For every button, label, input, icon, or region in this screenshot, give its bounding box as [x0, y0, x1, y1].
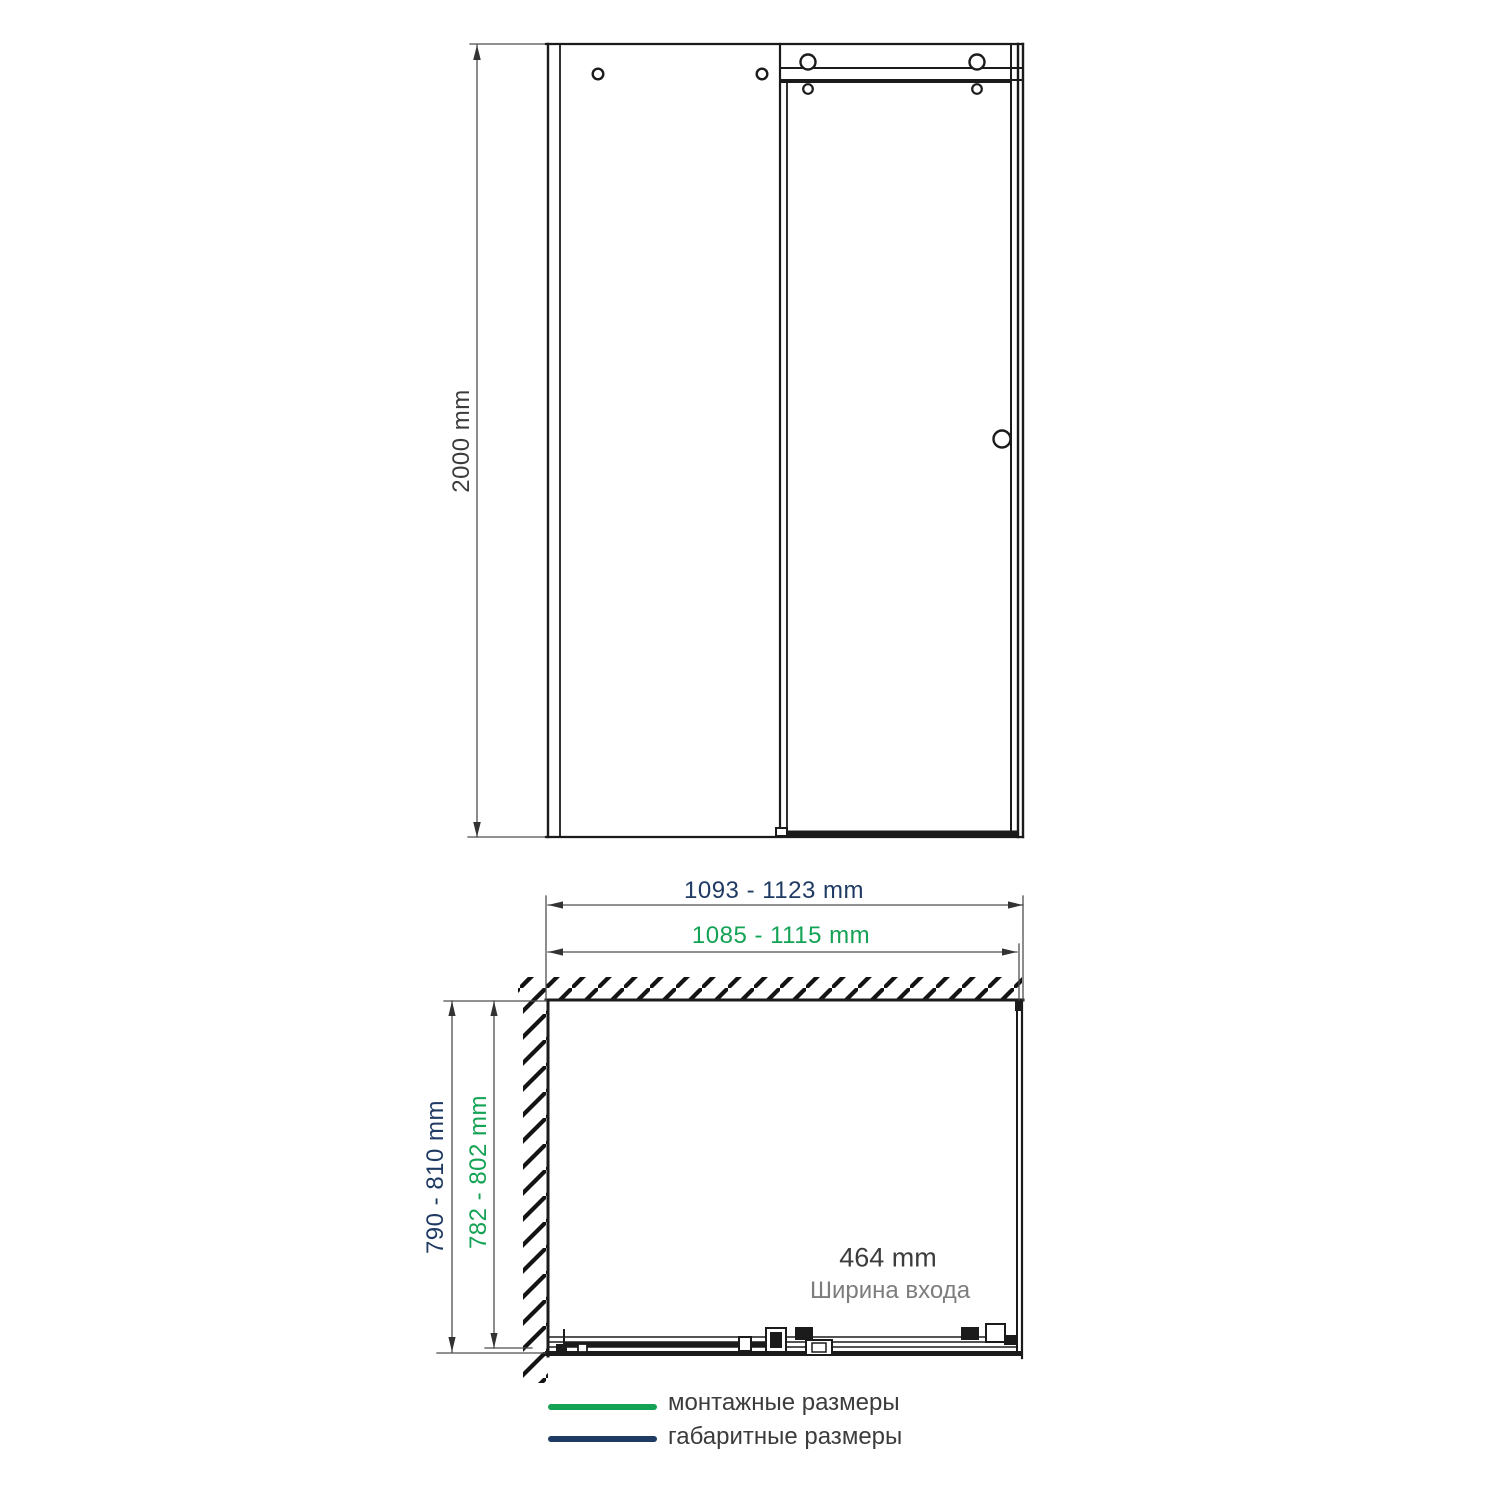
- legend-label-mounting: монтажные размеры: [668, 1391, 900, 1415]
- shower-enclosure-dimension-drawing: 2000 mm 1093 - 1123 mm 1085 - 1115 mm 79…: [0, 0, 1504, 1504]
- front-height-dimension-label: 2000 mm: [450, 389, 474, 493]
- door-handle-hole: [994, 431, 1011, 448]
- front-elevation-view: [468, 44, 1023, 837]
- plan-view-drawing: [437, 896, 1023, 1383]
- door-bottom-guide: [776, 828, 787, 836]
- overall-depth-dimension-label: 790 - 810 mm: [424, 1100, 448, 1254]
- glass-clamp: [739, 1337, 751, 1351]
- left-wall-hatch: [523, 977, 548, 1383]
- door-bottom-seal: [786, 831, 1018, 837]
- legend-swatch-mounting: [548, 1404, 657, 1410]
- roller-carriage-2: [795, 1327, 813, 1340]
- sliding-door-panel: [776, 44, 1018, 837]
- top-rail: [780, 68, 1022, 80]
- mounting-width-dimension-label: 1085 - 1115 mm: [692, 924, 870, 948]
- mounting-depth-dimension-label: 782 - 802 mm: [467, 1095, 491, 1249]
- bottom-track-assembly: [545, 1324, 1023, 1356]
- mount-hole-left: [593, 69, 604, 80]
- door-end-cap: [986, 1324, 1005, 1342]
- roller-carriage-1: [770, 1332, 782, 1348]
- door-rollers: [801, 55, 985, 94]
- overall-width-dimension-label: 1093 - 1123 mm: [684, 879, 864, 903]
- legend-swatch-overall: [548, 1436, 657, 1442]
- technical-drawing: [0, 0, 1504, 1504]
- entry-width-value: 464 mm: [839, 1245, 937, 1272]
- wall-profile-right: [1018, 44, 1023, 837]
- mount-hole-right: [757, 69, 768, 80]
- legend-label-overall: габаритные размеры: [668, 1425, 902, 1449]
- roller-carriage-3: [961, 1327, 979, 1340]
- entry-width-caption: Ширина входа: [810, 1279, 970, 1303]
- top-wall-hatch: [518, 977, 1022, 999]
- fixed-glass-panel: [548, 44, 767, 837]
- side-panel-plan: [1015, 1001, 1023, 1358]
